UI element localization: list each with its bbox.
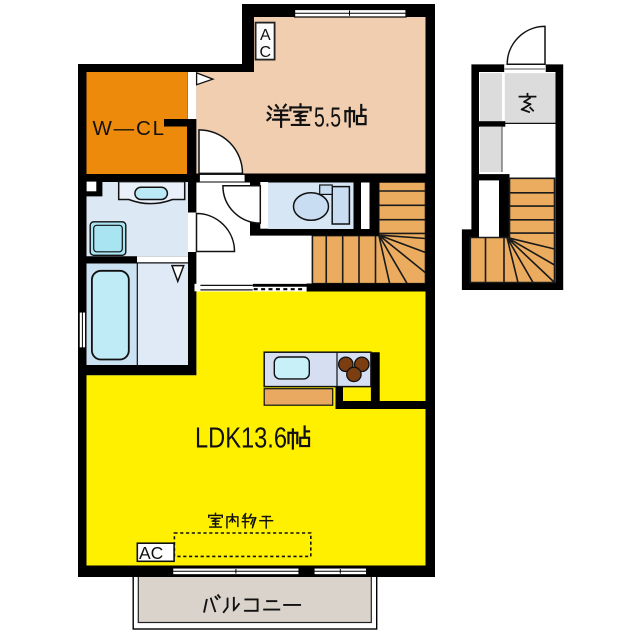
svg-text:A: A xyxy=(260,27,271,44)
svg-text:AC: AC xyxy=(139,543,163,563)
svg-text:C: C xyxy=(260,44,272,61)
svg-text:LDK13.6: LDK13.6 xyxy=(195,423,287,455)
svg-text:5.5: 5.5 xyxy=(314,101,341,132)
svg-text:W—CL: W—CL xyxy=(93,117,165,140)
